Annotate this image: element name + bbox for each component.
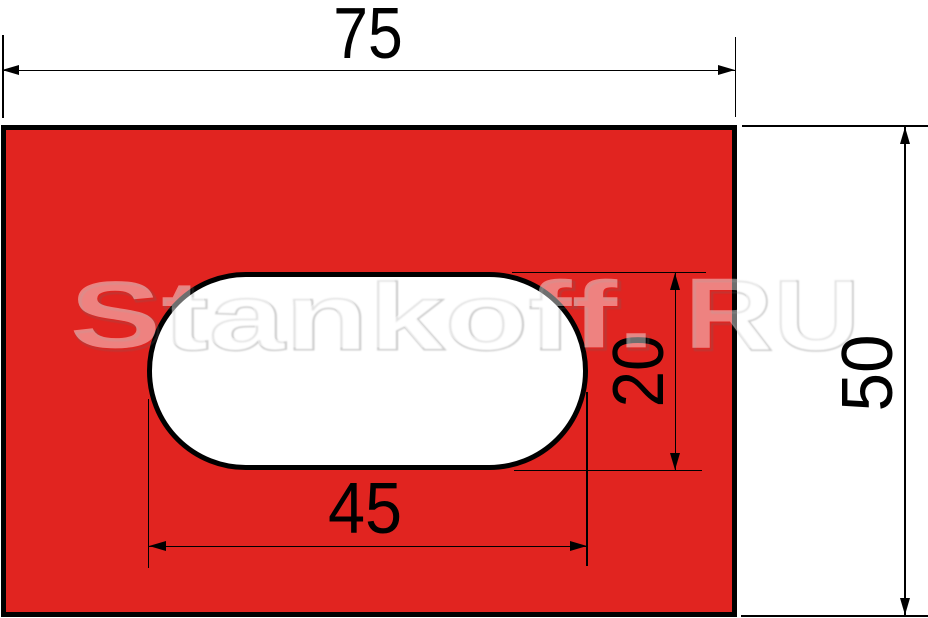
- svg-text:Stankoff.: Stankoff.: [70, 261, 655, 367]
- svg-text:RU: RU: [684, 257, 857, 369]
